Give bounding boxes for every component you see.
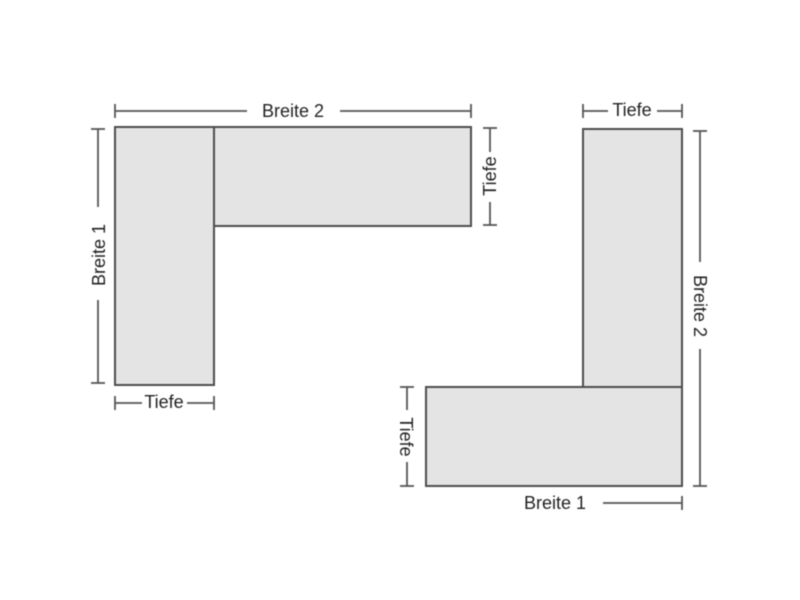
svg-text:Breite 1: Breite 1 [89,224,109,286]
svg-text:Tiefe: Tiefe [144,392,183,412]
svg-text:Tiefe: Tiefe [612,100,651,120]
svg-text:Tiefe: Tiefe [396,417,416,456]
svg-text:Breite 2: Breite 2 [262,101,324,121]
svg-text:Tiefe: Tiefe [480,156,500,195]
svg-text:Breite 1: Breite 1 [524,493,586,513]
svg-text:Breite 2: Breite 2 [690,275,710,337]
